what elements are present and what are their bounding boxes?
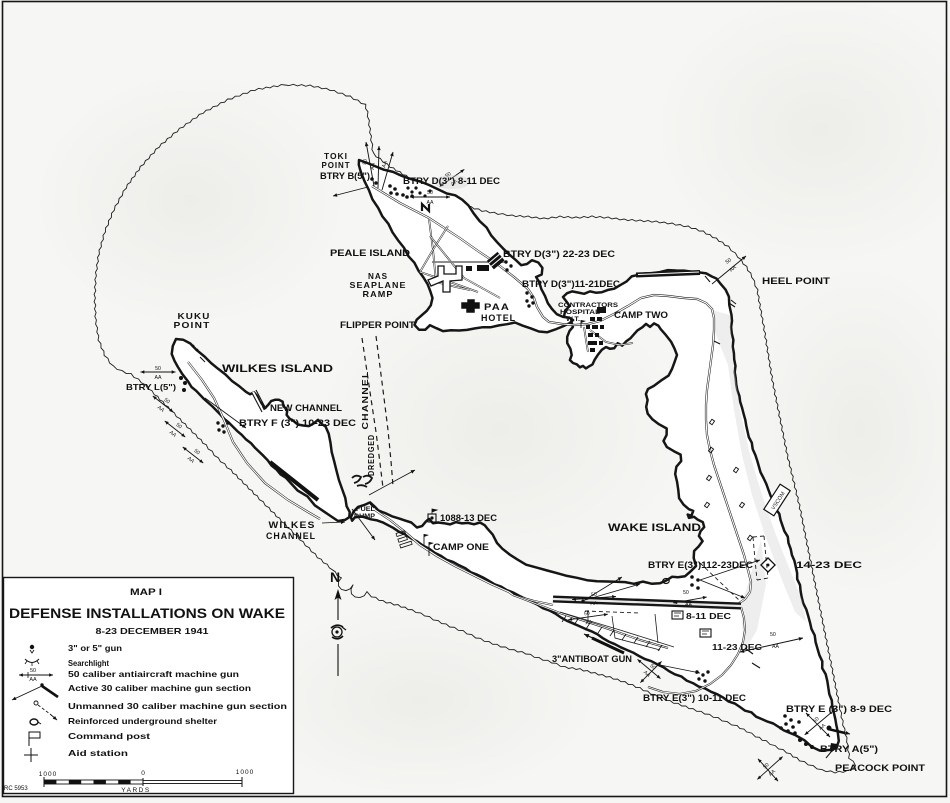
svg-text:BTRY D(3")11-21DEC: BTRY D(3")11-21DEC: [522, 279, 621, 289]
svg-text:RC 5953: RC 5953: [4, 786, 28, 792]
svg-text:CAMP TWO: CAMP TWO: [614, 310, 668, 320]
svg-text:HOTEL: HOTEL: [481, 313, 516, 324]
svg-text:AA: AA: [685, 602, 692, 608]
svg-text:AA: AA: [772, 644, 779, 650]
svg-text:AA: AA: [155, 375, 162, 381]
svg-text:3" or 5" gun: 3" or 5" gun: [68, 644, 122, 653]
svg-text:DREDGED: DREDGED: [366, 434, 376, 476]
svg-text:PEACOCK POINT: PEACOCK POINT: [835, 763, 926, 773]
svg-text:BTRY B(5"): BTRY B(5"): [320, 171, 370, 181]
svg-text:8-11 DEC: 8-11 DEC: [686, 611, 731, 621]
svg-text:HEEL POINT: HEEL POINT: [762, 276, 831, 286]
svg-text:POINT: POINT: [322, 160, 351, 170]
svg-text:11-23 DEC: 11-23 DEC: [712, 642, 762, 652]
svg-text:14-23 DEC: 14-23 DEC: [796, 560, 863, 570]
svg-text:DUMP: DUMP: [354, 513, 375, 520]
svg-text:PAA: PAA: [484, 302, 510, 313]
svg-text:8-23 DECEMBER 1941: 8-23 DECEMBER 1941: [96, 626, 209, 636]
svg-text:Reinforced underground shel: Reinforced underground shelter: [68, 717, 218, 726]
svg-text:BTRY E(3")112-23DEC: BTRY E(3")112-23DEC: [648, 560, 754, 570]
svg-text:50: 50: [155, 366, 161, 372]
svg-text:BTRY L(5"): BTRY L(5"): [126, 382, 176, 392]
svg-text:1000: 1000: [236, 769, 254, 776]
svg-text:BTRY F (3") 10-23 DEC: BTRY F (3") 10-23 DEC: [239, 418, 357, 428]
svg-text:50: 50: [30, 668, 36, 674]
svg-text:1000: 1000: [39, 771, 57, 778]
svg-text:FLIPPER POINT: FLIPPER POINT: [340, 320, 416, 330]
svg-text:CONTRACTORS: CONTRACTORS: [558, 302, 619, 309]
svg-text:RAMP: RAMP: [363, 289, 394, 299]
svg-text:50: 50: [770, 632, 776, 638]
svg-text:BTRY D(3") 22-23 DEC: BTRY D(3") 22-23 DEC: [503, 249, 616, 259]
svg-text:3"ANTIBOAT GUN: 3"ANTIBOAT GUN: [552, 654, 632, 664]
svg-text:HOSPITAL: HOSPITAL: [560, 309, 600, 316]
svg-text:1088-13 DEC: 1088-13 DEC: [440, 513, 498, 523]
svg-text:50: 50: [683, 590, 689, 596]
svg-text:CHANNEL: CHANNEL: [266, 531, 316, 541]
svg-text:CAMP ONE: CAMP ONE: [433, 542, 489, 552]
svg-text:YARDS: YARDS: [121, 787, 150, 794]
svg-text:Command post: Command post: [68, 732, 150, 741]
svg-text:POINT: POINT: [174, 320, 211, 330]
svg-text:FUEL: FUEL: [356, 506, 375, 513]
svg-text:WILKES ISLAND: WILKES ISLAND: [222, 363, 333, 375]
svg-text:AA: AA: [29, 677, 37, 683]
svg-text:CHANNEL: CHANNEL: [360, 371, 370, 430]
svg-text:NEW CHANNEL: NEW CHANNEL: [270, 403, 343, 413]
svg-text:0: 0: [141, 770, 145, 777]
svg-text:PEALE ISLAND: PEALE ISLAND: [330, 248, 410, 259]
svg-text:BTRY D(3") 8-11 DEC: BTRY D(3") 8-11 DEC: [403, 176, 501, 186]
svg-text:BTRY A(5"): BTRY A(5"): [820, 744, 878, 754]
svg-text:AA: AA: [427, 200, 434, 206]
svg-text:50 caliber antiaircraft mach: 50 caliber antiaircraft machine gun: [68, 670, 239, 679]
svg-text:AA: AA: [370, 162, 377, 170]
svg-text:Active 30 caliber machine: Active 30 caliber machine gun section: [68, 684, 251, 693]
svg-text:W.T.: W.T.: [566, 316, 580, 323]
svg-text:MAP I: MAP I: [130, 587, 162, 598]
svg-text:50: 50: [584, 611, 591, 618]
svg-text:Unmanned 30 caliber machine: Unmanned 30 caliber machine gun section: [68, 702, 287, 711]
svg-text:WAKE ISLAND: WAKE ISLAND: [608, 522, 701, 534]
svg-text:AA: AA: [590, 601, 598, 608]
svg-text:WILKES: WILKES: [269, 520, 316, 530]
svg-text:AA: AA: [585, 619, 593, 626]
svg-text:Searchlight: Searchlight: [68, 659, 109, 668]
svg-text:N: N: [330, 569, 341, 585]
svg-text:BTRY E(3") 10-11 DEC: BTRY E(3") 10-11 DEC: [643, 693, 747, 703]
svg-text:DEFENSE INSTALLATIONS ON WA: DEFENSE INSTALLATIONS ON WAKE: [9, 606, 285, 621]
svg-text:Aid station: Aid station: [68, 749, 128, 758]
svg-text:BTRY E (3") 8-9 DEC: BTRY E (3") 8-9 DEC: [786, 704, 893, 714]
svg-text:50: 50: [362, 159, 369, 166]
